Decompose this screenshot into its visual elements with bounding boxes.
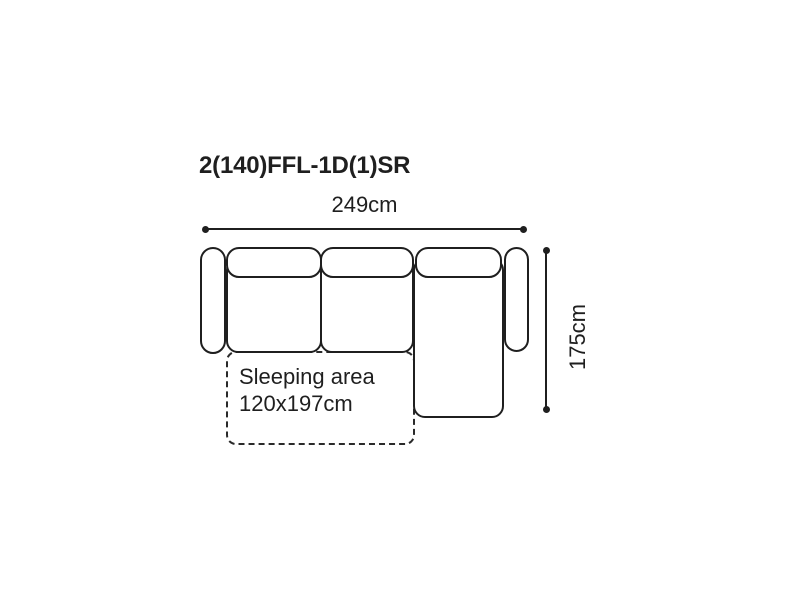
backrest-cushion-2 xyxy=(320,247,414,278)
backrest-cushion-1 xyxy=(226,247,322,278)
sleeping-area-label-line1: Sleeping area xyxy=(239,363,375,390)
depth-dimension-line xyxy=(545,248,547,412)
chaise-section xyxy=(413,258,504,418)
product-title: 2(140)FFL-1D(1)SR xyxy=(199,152,410,180)
sleeping-area-label-line2: 120x197cm xyxy=(239,390,375,417)
left-armrest xyxy=(200,247,226,354)
sofa-dimension-diagram: 2(140)FFL-1D(1)SR 249cm 175cm Sleeping a… xyxy=(0,0,800,600)
depth-dimension-label: 175cm xyxy=(565,304,591,370)
chaise-backrest-cushion xyxy=(415,247,502,278)
width-dimension-label: 249cm xyxy=(203,192,526,218)
width-dimension-line xyxy=(203,228,526,230)
right-armrest xyxy=(504,247,529,352)
sleeping-area-label: Sleeping area 120x197cm xyxy=(239,363,375,417)
